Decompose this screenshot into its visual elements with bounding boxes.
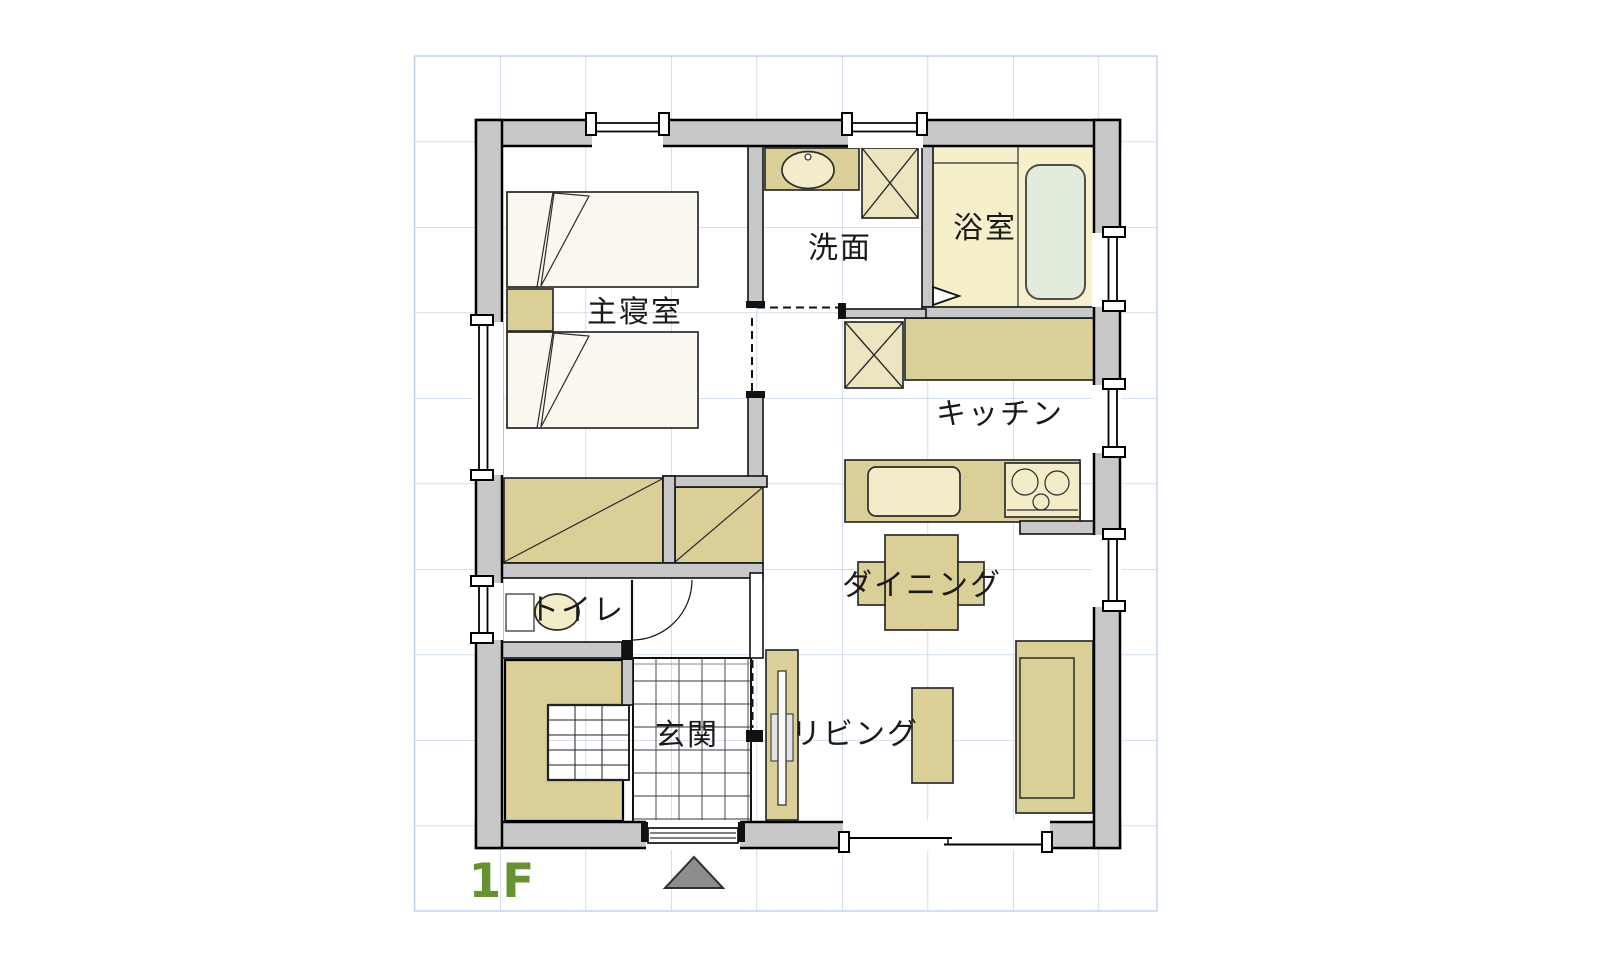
wall-closet-bottom bbox=[476, 563, 763, 578]
door-cap bbox=[641, 822, 648, 842]
wall-washroom-bathroom bbox=[922, 146, 933, 307]
label-kitchen: キッチン bbox=[936, 397, 1064, 432]
window-cap bbox=[659, 113, 669, 135]
wall-closet-divider bbox=[663, 476, 675, 563]
floor-plan-canvas: 主寝室 洗面 浴室 キッチン ダイニング リビング トイレ 玄関 1F bbox=[0, 0, 1600, 970]
tv-screen bbox=[778, 671, 786, 805]
label-toilet: トイレ bbox=[529, 593, 625, 628]
label-entrance: 玄関 bbox=[655, 718, 719, 753]
label-master-bedroom: 主寝室 bbox=[587, 295, 683, 330]
window-cap bbox=[1103, 379, 1125, 389]
window-opening bbox=[592, 117, 663, 148]
genkan-living-stub bbox=[746, 730, 763, 742]
wall-thin-genkan bbox=[750, 573, 763, 658]
wall-bathroom-kitchen bbox=[922, 307, 1094, 318]
bathtub bbox=[1026, 165, 1085, 299]
label-bathroom: 浴室 bbox=[953, 211, 1017, 246]
window-cap bbox=[1042, 832, 1052, 852]
window-cap bbox=[917, 113, 927, 135]
window-cap bbox=[1103, 529, 1125, 539]
window-cap bbox=[471, 633, 493, 643]
floor-label: 1F bbox=[469, 854, 536, 909]
wall-north bbox=[476, 120, 1120, 146]
kitchen-cabinet bbox=[905, 318, 1094, 380]
door-cap bbox=[738, 822, 745, 842]
bed-double bbox=[507, 192, 698, 287]
toilet-doorway-cap bbox=[622, 640, 633, 660]
faucet-dot bbox=[805, 154, 811, 160]
label-dining: ダイニング bbox=[842, 568, 1002, 603]
window-cap bbox=[1103, 301, 1125, 311]
label-washroom: 洗面 bbox=[808, 231, 872, 266]
window-opening bbox=[848, 117, 923, 148]
window-cap bbox=[1103, 601, 1125, 611]
entrance-door-panel bbox=[648, 828, 738, 843]
wall-entrance-stub bbox=[622, 658, 633, 705]
window-cap bbox=[842, 113, 852, 135]
window-cap bbox=[1103, 227, 1125, 237]
window-cap bbox=[471, 315, 493, 325]
wall-closet-top bbox=[663, 476, 767, 487]
floor-plan-page: 主寝室 洗面 浴室 キッチン ダイニング リビング トイレ 玄関 1F bbox=[0, 0, 1600, 970]
stove bbox=[1005, 463, 1080, 517]
kitchen-sink bbox=[868, 467, 960, 516]
window-cap bbox=[586, 113, 596, 135]
wall-west bbox=[476, 120, 502, 848]
wall-bedroom-hall-lower bbox=[748, 397, 763, 478]
window-cap bbox=[1103, 447, 1125, 457]
window-cap bbox=[471, 576, 493, 586]
label-living: リビング bbox=[791, 717, 919, 752]
window-cap bbox=[839, 832, 849, 852]
bed-single bbox=[507, 332, 698, 428]
wall-bedroom-hall-upper bbox=[748, 146, 763, 307]
wall-kitchen-half bbox=[1020, 521, 1094, 534]
window-cap bbox=[471, 470, 493, 480]
nightstand bbox=[507, 289, 553, 331]
wall-washroom-kitchen bbox=[842, 309, 926, 318]
sofa bbox=[1016, 641, 1093, 813]
entrance-door bbox=[641, 820, 745, 850]
